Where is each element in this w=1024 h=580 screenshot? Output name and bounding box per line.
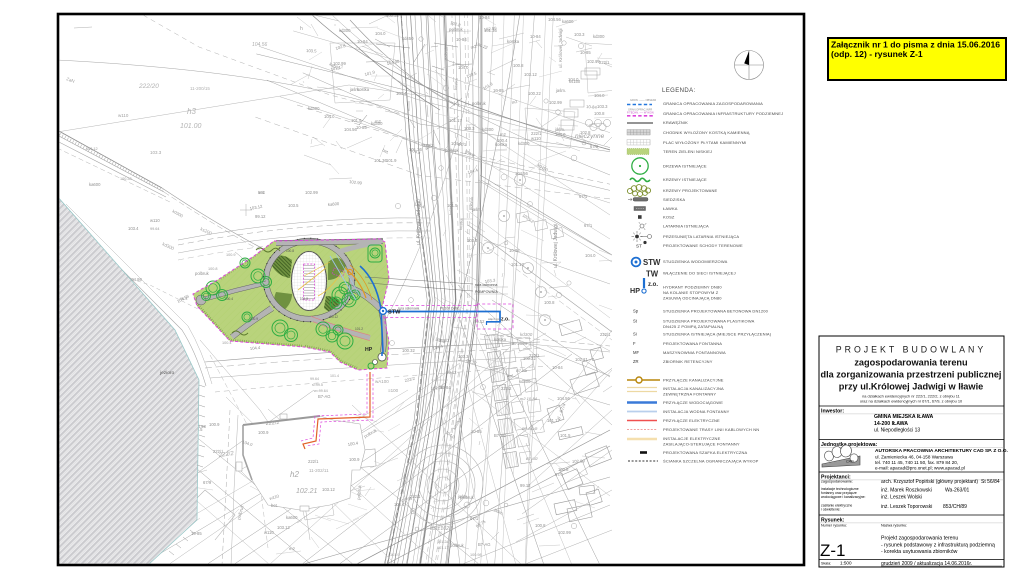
svg-text:STW: STW	[643, 258, 661, 267]
svg-text:PROJEKTOWANE SCHODY TERENOWE: PROJEKTOWANE SCHODY TERENOWE	[663, 243, 743, 248]
svg-text:101.36: 101.36	[484, 28, 497, 33]
svg-text:100.32: 100.32	[402, 348, 415, 353]
svg-text:99.12: 99.12	[255, 214, 266, 219]
svg-text:kd300: kd300	[518, 141, 530, 146]
svg-text:AUTORSKA PRACOWNIA ARCHITEKTUR: AUTORSKA PRACOWNIA ARCHITEKTURY CAD SP. …	[875, 448, 1008, 454]
svg-text:PROJEKT BUDOWLANY: PROJEKT BUDOWLANY	[836, 345, 987, 355]
svg-text:MF: MF	[633, 350, 639, 355]
svg-text:m2: m2	[500, 132, 506, 137]
svg-text:100.9: 100.9	[250, 317, 258, 321]
svg-text:100.8: 100.8	[513, 63, 524, 68]
svg-text:100.8: 100.8	[208, 267, 218, 271]
svg-text:St 56/84: St 56/84	[981, 479, 1000, 485]
svg-text:101.17: 101.17	[449, 118, 462, 123]
svg-text:≡100: ≡100	[388, 388, 399, 393]
svg-text:GMINA MIEJSKA IŁAWA: GMINA MIEJSKA IŁAWA	[874, 414, 934, 420]
svg-text:m2: m2	[289, 546, 296, 551]
svg-text:Załącznik nr 1 do pisma z dnia: Załącznik nr 1 do pisma z dnia 15.06.201…	[831, 40, 1000, 50]
svg-text:67/1: 67/1	[555, 472, 564, 477]
svg-text:B7-M2: B7-M2	[526, 456, 539, 461]
svg-text:10-85: 10-85	[580, 50, 591, 55]
svg-text:10-85: 10-85	[356, 125, 367, 130]
svg-text:e-mail: apacad@pro.onet.pl; ww: e-mail: apacad@pro.onet.pl; www.apacad.p…	[875, 466, 965, 471]
svg-text:kostka: kostka	[507, 39, 520, 44]
svg-text:103.4: 103.4	[128, 226, 139, 231]
svg-text:GRANICA OPRACOWANIA ZAGOSPODAR: GRANICA OPRACOWANIA ZAGOSPODAROWANIA	[663, 101, 763, 106]
svg-text:104.56: 104.56	[252, 42, 268, 48]
svg-text:103.12: 103.12	[86, 147, 98, 151]
svg-text:jaśm.: jaśm.	[471, 207, 482, 212]
svg-text:kd300: kd300	[308, 106, 320, 111]
svg-text:101.9: 101.9	[390, 553, 400, 557]
svg-text:103.3: 103.3	[464, 126, 475, 131]
svg-text:B7-Ab: B7-Ab	[516, 368, 528, 373]
svg-text:kost.102.8: kost.102.8	[430, 526, 453, 532]
svg-text:100.9: 100.9	[349, 457, 360, 462]
svg-text:104.0: 104.0	[555, 132, 566, 137]
svg-text:F: F	[633, 341, 636, 346]
svg-text:101.17: 101.17	[511, 262, 524, 267]
svg-text:polbruk: polbruk	[450, 543, 465, 548]
svg-text:arch. Krzysztof Popiński (głów: arch. Krzysztof Popiński (główny projekt…	[881, 479, 978, 485]
svg-text:asf.: asf.	[507, 373, 514, 378]
svg-text:222/1: 222/1	[600, 332, 611, 337]
svg-text:SIEDZISKA: SIEDZISKA	[663, 197, 685, 202]
svg-text:100.4: 100.4	[394, 502, 405, 507]
svg-text:ŁAWKA: ŁAWKA	[663, 206, 678, 211]
svg-text:102.8: 102.8	[558, 467, 569, 472]
svg-text:ZASUWĄ ODCINAJĄCĄ DN80: ZASUWĄ ODCINAJĄCĄ DN80	[663, 296, 722, 301]
svg-text:102.99: 102.99	[305, 190, 318, 195]
svg-text:10-84: 10-84	[509, 248, 520, 253]
svg-text:222/2: 222/2	[265, 420, 280, 427]
svg-text:100.8: 100.8	[535, 523, 546, 528]
svg-text:B7-AG: B7-AG	[478, 542, 491, 547]
svg-text:Projekt zagospodarowania teren: Projekt zagospodarowania terenu	[881, 536, 958, 542]
svg-text:h3: h3	[187, 107, 196, 116]
svg-text:jaśm.: jaśm.	[555, 88, 566, 93]
svg-text:101.9: 101.9	[386, 158, 397, 163]
svg-text:ZASILAJĄCO-STERUJĄCE FONTANNY: ZASILAJĄCO-STERUJĄCE FONTANNY	[663, 442, 740, 447]
svg-text:polbruk: polbruk	[445, 148, 460, 153]
svg-text:ul. Zamieniecka 46, 04-158 Wa: ul. Zamieniecka 46, 04-158 Warszawa	[875, 455, 953, 460]
svg-text:102.99: 102.99	[587, 59, 600, 64]
svg-text:103.12: 103.12	[277, 525, 290, 530]
svg-text:INSTALACJE ELEKTRYCZNE: INSTALACJE ELEKTRYCZNE	[663, 436, 721, 441]
svg-text:ZBIORNIK RETENCYJNY: ZBIORNIK RETENCYJNY	[663, 359, 713, 364]
svg-text:101.2: 101.2	[355, 327, 363, 331]
svg-text:kostka: kostka	[494, 337, 507, 342]
svg-text:(odp. 12) - rysunek Z-1: (odp. 12) - rysunek Z-1	[831, 49, 923, 59]
svg-text:GRANICA OPRACOWANIA INFRASTRUK: GRANICA OPRACOWANIA INFRASTRUKTURY PODZI…	[663, 111, 783, 116]
svg-text:99.64: 99.64	[150, 227, 160, 231]
svg-text:104.0: 104.0	[594, 93, 605, 98]
svg-text:przy ul.Królowej Jadwigi w Iła: przy ul.Królowej Jadwigi w Iławie	[839, 382, 983, 392]
svg-text:PROJEKTOWANA SZAFKA ELEKTRYCZN: PROJEKTOWANA SZAFKA ELEKTRYCZNA	[663, 450, 748, 455]
svg-text:PRZESUNIĘTA LATARNIA ISTNIEJĄC: PRZESUNIĘTA LATARNIA ISTNIEJĄCA	[663, 234, 739, 239]
svg-text:67/1: 67/1	[470, 516, 479, 521]
svg-text:kd300: kd300	[593, 34, 605, 39]
svg-text:222/1: 222/1	[529, 353, 540, 358]
svg-text:polbruk: polbruk	[472, 101, 487, 106]
svg-text:103.5: 103.5	[306, 48, 317, 54]
svg-text:103.5: 103.5	[467, 238, 478, 243]
svg-text:222/1: 222/1	[410, 494, 421, 499]
svg-text:104.0: 104.0	[458, 65, 469, 70]
svg-text:NA KOLANIE STOPOWYM Z: NA KOLANIE STOPOWYM Z	[663, 290, 719, 295]
svg-text:101.36: 101.36	[409, 147, 422, 152]
svg-text:kd300: kd300	[339, 28, 351, 33]
svg-text:zagospodarowania terenu: zagospodarowania terenu	[854, 358, 967, 368]
svg-text:100.22: 100.22	[528, 91, 541, 96]
svg-text:HP: HP	[630, 286, 640, 295]
svg-text:100.4: 100.4	[225, 297, 233, 301]
svg-text:z.o.: z.o.	[501, 317, 510, 323]
svg-text:PRZYŁĄCZE KANALIZACYJNE: PRZYŁĄCZE KANALIZACYJNE	[663, 378, 724, 383]
svg-text:DRZEWA ISTNIEJĄCE: DRZEWA ISTNIEJĄCE	[663, 164, 707, 169]
svg-text:polbruk: polbruk	[449, 27, 464, 32]
svg-text:KRAWĘŻNIK: KRAWĘŻNIK	[663, 120, 688, 125]
svg-text:włącz. istn.: włącz. istn.	[488, 317, 502, 321]
svg-text:POMPOWNIA: POMPOWNIA	[475, 290, 498, 294]
svg-text:polbruk: polbruk	[443, 47, 449, 60]
svg-text:ka600: ka600	[328, 201, 340, 207]
svg-text:ul. Królowej Jadwigi: ul. Królowej Jadwigi	[558, 28, 563, 68]
svg-text:222/1: 222/1	[599, 60, 610, 65]
svg-text:10-84: 10-84	[552, 365, 563, 370]
svg-text:kd300: kd300	[520, 332, 533, 337]
svg-text:222/2: 222/2	[501, 386, 512, 391]
svg-text:STUDZIENKA PROJEKTOWANA BETONO: STUDZIENKA PROJEKTOWANA BETONOWA DN1200	[663, 309, 769, 314]
svg-text:i oświetlenie:: i oświetlenie:	[821, 508, 840, 512]
svg-text:- rysunek podstawowy z infrast: - rysunek podstawowy z infrastrukturą po…	[881, 543, 995, 549]
svg-text:Skala:: Skala:	[821, 562, 831, 566]
svg-text:CAD: CAD	[846, 460, 854, 464]
svg-text:PLAC WYŁOŻONY PŁYTAMI KAMIENNY: PLAC WYŁOŻONY PŁYTAMI KAMIENNYMI	[663, 140, 747, 145]
svg-text:100.8: 100.8	[544, 300, 555, 305]
svg-text:w110: w110	[264, 530, 274, 535]
svg-text:zagospodarowanie:: zagospodarowanie:	[821, 480, 853, 484]
svg-text:ZR: ZR	[633, 359, 639, 364]
svg-text:m2 10-84: m2 10-84	[520, 396, 538, 401]
svg-text:w110: w110	[118, 113, 129, 118]
svg-text:101.5: 101.5	[300, 297, 308, 301]
svg-text:222/20: 222/20	[138, 83, 159, 90]
svg-text:101.36: 101.36	[374, 158, 387, 163]
svg-text:PRZYŁĄCZE WODOCIĄGOWE: PRZYŁĄCZE WODOCIĄGOWE	[663, 400, 723, 405]
svg-text:polbruk: polbruk	[195, 271, 210, 276]
svg-text:104.0: 104.0	[585, 253, 596, 258]
svg-text:PE100 Dn90: PE100 Dn90	[440, 307, 459, 311]
svg-text:10-84: 10-84	[479, 15, 490, 20]
svg-text:B7-AG/8: B7-AG/8	[522, 426, 538, 431]
svg-text:10-84: 10-84	[456, 37, 467, 42]
svg-text:ST: ST	[636, 244, 642, 249]
svg-text:103.3: 103.3	[574, 32, 585, 37]
svg-text:104.56: 104.56	[557, 396, 570, 401]
svg-text:Wa-263/01: Wa-263/01	[945, 488, 969, 494]
svg-text:100.9: 100.9	[226, 253, 236, 257]
svg-text:oraz na działkach ewidencyjnyc: oraz na działkach ewidencyjnych nr 67/1,…	[860, 399, 963, 404]
svg-text:67/1: 67/1	[579, 194, 588, 199]
svg-text:DN425 Z POMPĄ ZATAPIALNĄ: DN425 Z POMPĄ ZATAPIALNĄ	[663, 324, 723, 329]
svg-text:B7-AG: B7-AG	[318, 394, 331, 399]
svg-text:s=99.5: s=99.5	[312, 383, 323, 387]
svg-text:ul. Królowej Jadwigi: ul. Królowej Jadwigi	[553, 224, 559, 268]
svg-text:h2: h2	[290, 470, 299, 479]
svg-text:100.8: 100.8	[286, 249, 294, 253]
svg-text:inż. Leszek Toporowski: inż. Leszek Toporowski	[881, 504, 932, 510]
svg-text:99.12: 99.12	[446, 370, 457, 375]
svg-text:104.0: 104.0	[324, 114, 335, 119]
svg-text:inż. Leszek Wolski: inż. Leszek Wolski	[881, 495, 922, 501]
svg-text:853/CH/89: 853/CH/89	[943, 504, 967, 510]
svg-text:101.17: 101.17	[547, 418, 560, 423]
svg-text:GRON. ─── OBSZAR: GRON. ─── OBSZAR	[630, 98, 656, 102]
svg-text:99.12: 99.12	[474, 319, 485, 324]
svg-text:inż. Marek Roszkowski: inż. Marek Roszkowski	[881, 488, 932, 494]
svg-text:ZEWNĘTRZNA FONTANNY: ZEWNĘTRZNA FONTANNY	[663, 392, 716, 397]
svg-text:222/2: 222/2	[423, 143, 434, 148]
svg-text:m2: m2	[259, 190, 265, 195]
svg-text:67/9: 67/9	[203, 480, 212, 485]
svg-text:dla zorganizowania przestrzeni: dla zorganizowania przestrzeni publiczne…	[821, 370, 1002, 380]
svg-text:z.o.: z.o.	[648, 282, 658, 288]
svg-text:kd300: kd300	[519, 379, 531, 384]
svg-text:100.4: 100.4	[222, 341, 232, 345]
svg-text:bet.: bet.	[271, 503, 278, 508]
svg-text:100.9: 100.9	[209, 422, 220, 427]
svg-text:HP: HP	[365, 347, 373, 353]
svg-text:102.21: 102.21	[296, 488, 318, 495]
svg-text:104.4: 104.4	[451, 141, 462, 146]
svg-text:kd300: kd300	[482, 127, 494, 132]
svg-text:w110: w110	[150, 218, 160, 223]
svg-text:STUDZIENKA ISTNIEJĄCA (MIEJSCE: STUDZIENKA ISTNIEJĄCA (MIEJSCE PRZYŁĄCZE…	[663, 332, 772, 337]
svg-text:102.99: 102.99	[549, 100, 562, 105]
svg-text:LEGENDA:: LEGENDA:	[662, 88, 696, 94]
svg-text:Sp: Sp	[633, 309, 639, 314]
svg-text:Nazwa rysunku:: Nazwa rysunku:	[881, 524, 907, 528]
svg-text:Si: Si	[633, 332, 637, 337]
svg-text:101.00: 101.00	[180, 123, 202, 130]
svg-text:101.5: 101.5	[560, 433, 571, 438]
svg-text:wA100: wA100	[375, 379, 389, 384]
svg-text:101.4: 101.4	[330, 374, 339, 378]
svg-text:kostka: kostka	[357, 87, 370, 92]
svg-text:222/1: 222/1	[308, 459, 319, 464]
svg-text:STUDZIENKA WODOMIERZOWA: STUDZIENKA WODOMIERZOWA	[663, 259, 728, 264]
svg-text:P.TECHN. ── WYKON: P.TECHN. ── WYKON	[627, 111, 654, 115]
svg-text:KOSZ: KOSZ	[663, 215, 675, 220]
svg-text:Inwestor:: Inwestor:	[821, 409, 844, 415]
svg-text:10-85: 10-85	[493, 88, 504, 93]
svg-text:103.3: 103.3	[150, 150, 162, 155]
svg-text:10-84: 10-84	[586, 104, 598, 110]
svg-text:PROJEKTOWANA FONTANNA: PROJEKTOWANA FONTANNA	[663, 341, 722, 346]
svg-text:11-200/15: 11-200/15	[190, 86, 210, 91]
svg-text:104.4: 104.4	[396, 91, 407, 96]
svg-text:101.5: 101.5	[447, 203, 458, 208]
svg-text:ul. Niepodległości 13: ul. Niepodległości 13	[874, 428, 920, 434]
svg-text:103.12: 103.12	[524, 72, 537, 77]
svg-text:WŁĄCZENIE DO SIECI ISTNIEJĄCEJ: WŁĄCZENIE DO SIECI ISTNIEJĄCEJ	[663, 271, 736, 276]
svg-text:MASZYNOWNIA FONTANNOWA: MASZYNOWNIA FONTANNOWA	[663, 350, 726, 355]
svg-text:INSTALACJA KANALIZACYJNA: INSTALACJA KANALIZACYJNA	[663, 386, 724, 391]
svg-text:HYDRANT PODZIEMNY DN80: HYDRANT PODZIEMNY DN80	[663, 285, 722, 290]
svg-text:102.99: 102.99	[572, 458, 586, 464]
svg-text:100.9: 100.9	[258, 430, 269, 435]
svg-text:99.12: 99.12	[520, 483, 531, 488]
svg-text:w=99.64: w=99.64	[314, 389, 328, 393]
svg-text:B7-AG/6: B7-AG/6	[512, 341, 528, 346]
svg-text:99.64: 99.64	[310, 377, 319, 381]
svg-text:104.56: 104.56	[548, 17, 561, 22]
svg-text:67/9: 67/9	[590, 144, 599, 149]
svg-text:222/1: 222/1	[531, 131, 542, 136]
svg-text:104.56: 104.56	[344, 127, 357, 132]
svg-text:KRZEWY PROJEKTOWANE: KRZEWY PROJEKTOWANE	[663, 188, 718, 193]
svg-text:103.3: 103.3	[597, 104, 608, 109]
svg-text:10-85: 10-85	[191, 531, 202, 536]
svg-text:14-200 IŁAWA: 14-200 IŁAWA	[874, 421, 908, 427]
svg-text:100.8: 100.8	[594, 111, 605, 116]
svg-text:100.33: 100.33	[120, 177, 132, 181]
svg-text:101.5: 101.5	[351, 118, 362, 123]
svg-text:10-85: 10-85	[471, 429, 482, 434]
svg-text:104.0: 104.0	[375, 31, 386, 36]
svg-text:ka600: ka600	[89, 182, 101, 187]
svg-text:jezioro: jezioro	[159, 370, 174, 376]
svg-text:wodociągowe i kanalizacyjne:: wodociągowe i kanalizacyjne:	[821, 495, 866, 499]
svg-text:101.24: 101.24	[437, 540, 449, 544]
svg-text:nieczynne: nieczynne	[575, 133, 605, 140]
svg-text:104.56: 104.56	[515, 171, 528, 176]
svg-text:STW: STW	[388, 310, 401, 316]
svg-text:m2: m2	[375, 119, 381, 124]
svg-text:CHODNIK WYŁOŻONY KOSTKĄ KAMIEN: CHODNIK WYŁOŻONY KOSTKĄ KAMIENNĄ	[663, 130, 750, 135]
svg-text:103.12: 103.12	[322, 487, 335, 492]
svg-text:10-84: 10-84	[440, 385, 451, 390]
svg-text:99.12: 99.12	[330, 315, 338, 319]
svg-text:67/1: 67/1	[584, 223, 593, 228]
svg-text:ka600: ka600	[286, 515, 298, 520]
svg-text:101.17: 101.17	[437, 546, 449, 550]
svg-text:100.98: 100.98	[470, 553, 482, 557]
svg-text:ŚCIANKA SZCZELNA OGRANICZAJĄCA: ŚCIANKA SZCZELNA OGRANICZAJĄCA WYKOP	[663, 459, 759, 464]
svg-text:Numer rysunku:: Numer rysunku:	[821, 524, 847, 528]
svg-text:10-84: 10-84	[357, 39, 368, 44]
svg-text:rura osłonowa: rura osłonowa	[398, 307, 419, 311]
svg-text:KRZEWY ISTNIEJĄCE: KRZEWY ISTNIEJĄCE	[663, 177, 707, 182]
svg-text:LATARNIA ISTNIEJĄCA: LATARNIA ISTNIEJĄCA	[663, 224, 709, 229]
svg-text:102.99: 102.99	[558, 530, 571, 535]
svg-text:100.4: 100.4	[497, 138, 508, 143]
svg-text:w110: w110	[531, 136, 541, 141]
svg-text:TEREN ZIELENI NISKIEJ: TEREN ZIELENI NISKIEJ	[663, 149, 712, 154]
svg-text:jaśm.: jaśm.	[457, 494, 468, 499]
svg-text:Z-1: Z-1	[820, 541, 846, 560]
svg-text:PRZYŁĄCZE ELEKTRYCZNE: PRZYŁĄCZE ELEKTRYCZNE	[663, 418, 720, 423]
svg-text:- korekta usytuowania zbiornik: - korekta usytuowania zbiorników	[881, 549, 958, 555]
svg-text:ka600: ka600	[562, 19, 574, 24]
svg-text:B7-AG: B7-AG	[494, 433, 507, 438]
svg-text:ul. Królowej Jadwigi: ul. Królowej Jadwigi	[416, 201, 422, 245]
svg-text:h: h	[300, 26, 303, 32]
svg-text:STUDZIENKA PROJEKTOWANA PLASTI: STUDZIENKA PROJEKTOWANA PLASTIKOWA	[663, 319, 755, 324]
svg-text:kostka: kostka	[458, 217, 464, 230]
svg-text:tel. 740 11 45, 740 11 50, fax: tel. 740 11 45, 740 11 50, fax. 879 84 2…	[875, 460, 958, 465]
svg-text:TW: TW	[646, 270, 659, 279]
svg-text:PROJEKTOWANE TRASY LINII KABLO: PROJEKTOWANE TRASY LINII KABLOWYCH NN	[663, 427, 759, 432]
svg-text:rura ochronna: rura ochronna	[475, 283, 497, 287]
svg-text:11-202/11: 11-202/11	[309, 468, 329, 473]
svg-text:ks150: ks150	[569, 79, 581, 84]
svg-text:INSTALACJA WODNA FONTANNY: INSTALACJA WODNA FONTANNY	[663, 409, 730, 414]
svg-text:103.5: 103.5	[288, 203, 299, 208]
svg-text:kd450: kd450	[402, 36, 414, 41]
svg-text:102.21: 102.21	[575, 357, 588, 362]
svg-text:10-84: 10-84	[530, 34, 541, 39]
svg-text:1:500: 1:500	[840, 561, 852, 566]
